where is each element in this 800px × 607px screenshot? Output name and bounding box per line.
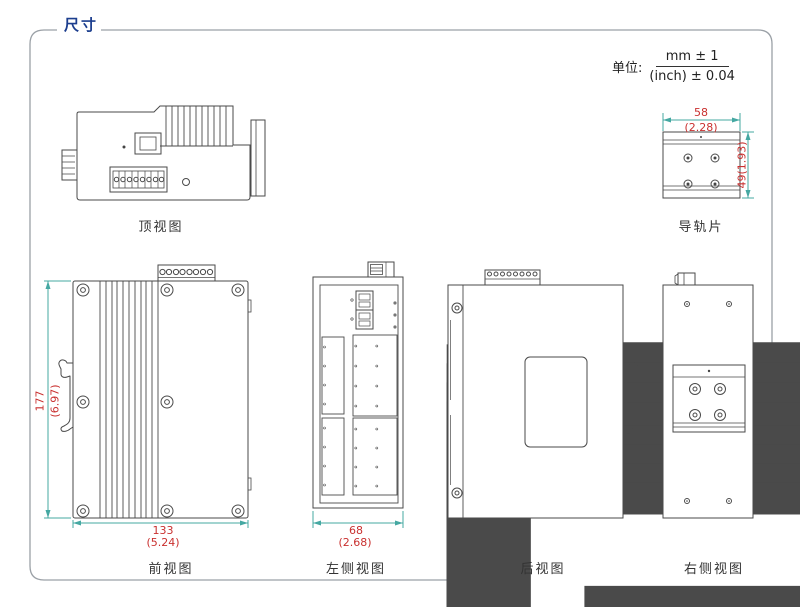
top-view-drawing (62, 106, 265, 200)
front-width-inch: (5.24) (146, 537, 179, 548)
left-view-label: 左侧视图 (326, 558, 386, 577)
unit-tolerance-block: 单位: mm ± 1 (inch) ± 0.04 (612, 49, 735, 84)
led-icon (393, 313, 396, 316)
page-title: 尺寸 (61, 14, 101, 35)
top-view-label: 顶视图 (138, 216, 183, 235)
terminal-block-back (485, 270, 540, 285)
front-view-label: 前视图 (148, 558, 193, 577)
left-body (313, 277, 403, 508)
led-icon (393, 301, 396, 304)
reset-pinhole (123, 146, 126, 149)
top-power-connector (368, 262, 394, 277)
unit-label: 单位: (612, 57, 642, 76)
front-height-inch: (6.97) (50, 384, 61, 417)
left-width-mm: 68 (349, 525, 363, 536)
right-view-label: 右侧视图 (684, 558, 744, 577)
din-rail-plate-drawing (663, 132, 740, 198)
din-height: 49(1.93) (737, 141, 748, 188)
right-side-view-drawing (663, 273, 753, 518)
back-view-label: 后视图 (520, 558, 565, 577)
front-height-mm: 177 (35, 391, 46, 412)
line-art-canvas (0, 0, 800, 607)
front-body (73, 281, 248, 518)
top-view-body (77, 106, 250, 200)
terminal-block-front (158, 265, 215, 281)
right-body (663, 285, 753, 518)
din-rail-label: 导轨片 (678, 216, 723, 235)
top-power-connector-side (675, 273, 695, 285)
unit-mm-tolerance: mm ± 1 (656, 49, 729, 67)
dimension-drawing-page: 尺寸 单位: mm ± 1 (inch) ± 0.04 顶视图 导轨片 前视图 … (0, 0, 800, 607)
unit-inch-tolerance: (inch) ± 0.04 (649, 67, 734, 84)
din-rail-edge (251, 120, 265, 196)
front-view-drawing (59, 265, 251, 518)
din-width-mm: 58 (694, 107, 708, 118)
left-width-inch: (2.68) (338, 537, 371, 548)
side-ribbed-connector (62, 150, 77, 180)
back-view-drawing (448, 270, 637, 518)
front-width-mm: 133 (153, 525, 174, 536)
din-width-inch: (2.28) (684, 122, 717, 133)
led-icon (393, 325, 396, 328)
back-body (448, 285, 623, 518)
unit-fraction: mm ± 1 (inch) ± 0.04 (649, 49, 734, 84)
